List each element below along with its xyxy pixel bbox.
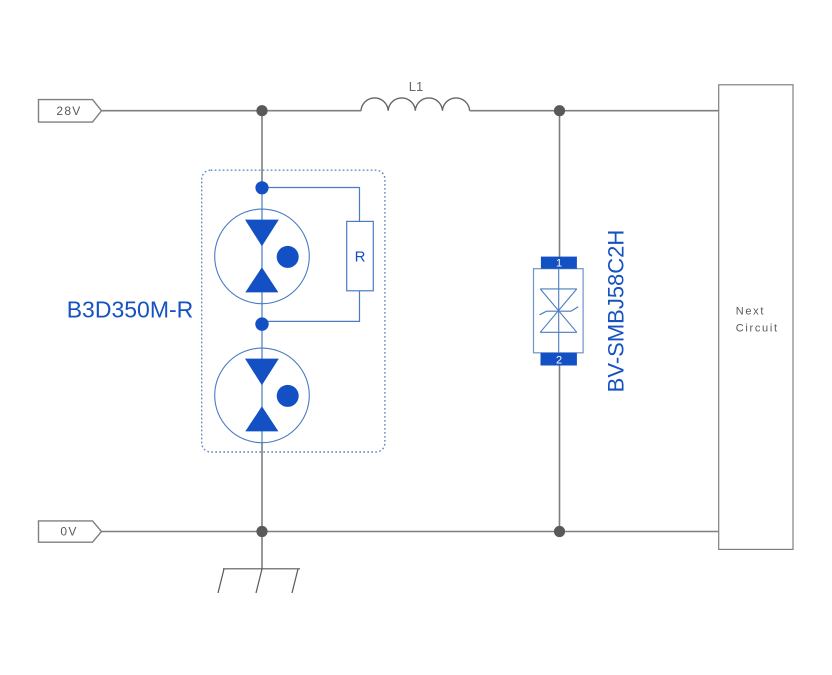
svg-text:1: 1 bbox=[556, 258, 562, 270]
svg-text:R: R bbox=[355, 249, 366, 266]
svg-text:BV-SMBJ58C2H: BV-SMBJ58C2H bbox=[603, 230, 628, 393]
svg-text:28V: 28V bbox=[56, 104, 81, 118]
svg-text:B3D350M-R: B3D350M-R bbox=[67, 297, 194, 323]
svg-text:Circuit: Circuit bbox=[736, 322, 779, 334]
svg-text:Next: Next bbox=[736, 306, 765, 318]
svg-text:0V: 0V bbox=[60, 525, 77, 539]
svg-text:L1: L1 bbox=[409, 79, 423, 94]
svg-text:2: 2 bbox=[556, 354, 562, 366]
